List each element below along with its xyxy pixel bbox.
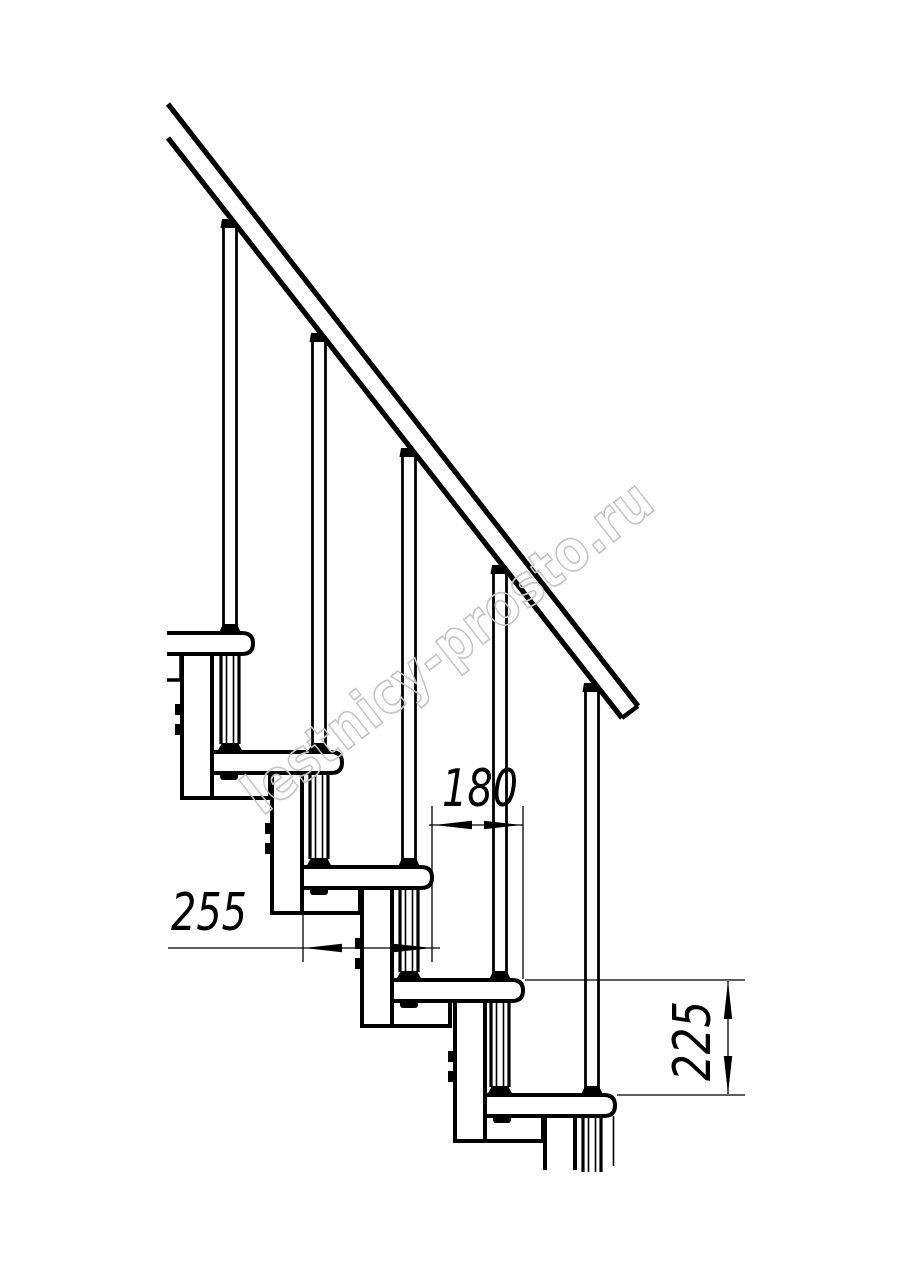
tread-1 [167,633,253,654]
clamp-bracket [175,724,183,735]
clamp-bracket [355,958,363,969]
support-tube-1 [217,654,243,752]
support-column-5 [448,1001,485,1141]
arrow-left [434,821,472,829]
clamp-bracket [265,843,273,854]
dim-label-rise: 225 [663,1001,723,1081]
support-tube-3 [396,888,422,980]
clamp-bracket [448,1071,456,1082]
staircase-drawing-svg: 255 180 225 lestnicy-prosto.ru [0,0,914,1280]
dim-run-180: 180 [429,759,523,979]
tread-fastener [400,1000,418,1008]
arrow-right [484,821,522,829]
tread-5 [485,1095,615,1116]
arrow-up [724,981,732,1019]
clamp-bracket [448,1051,456,1062]
support-column-6 [545,1116,575,1170]
tread-fastener [310,887,328,895]
arrow-down [724,1056,732,1094]
dim-label-run: 180 [442,759,518,819]
baluster-2 [308,333,330,752]
tread-3 [302,867,432,888]
rear-box-1 [167,654,181,680]
staircase-drawing-page: 255 180 225 lestnicy-prosto.ru [0,0,914,1280]
tread-4 [392,980,523,1001]
tread-fastener [493,1115,511,1123]
dim-label-depth: 255 [171,883,247,943]
dim-rise-225: 225 [525,980,745,1095]
support-tube-4 [487,1001,513,1095]
arrow-left [304,944,342,952]
baluster-5 [581,683,603,1095]
baluster-1 [219,219,241,633]
support-tube-5 [583,1116,601,1172]
clamp-bracket [175,704,183,715]
